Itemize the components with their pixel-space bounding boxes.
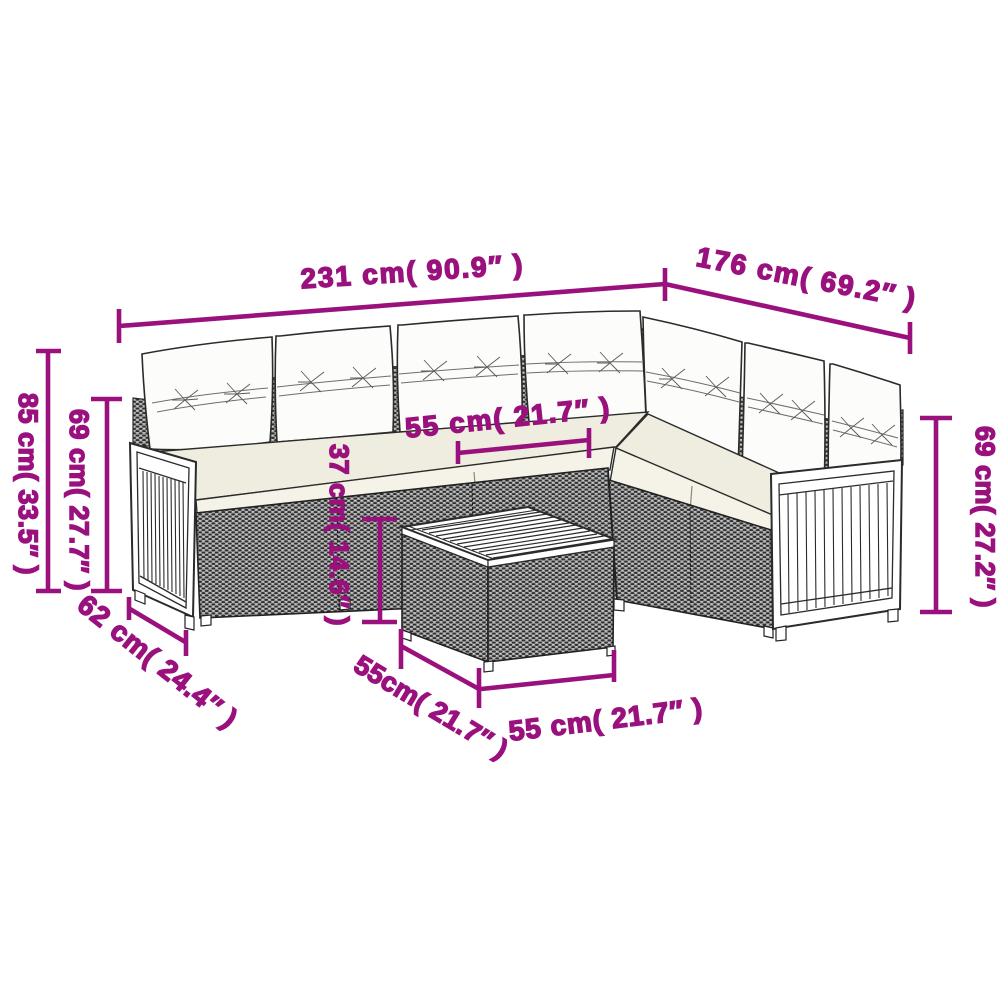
svg-text:69 cm( 27.7″ ): 69 cm( 27.7″ ) xyxy=(64,409,94,591)
svg-text:37 cm( 14.6″ ): 37 cm( 14.6″ ) xyxy=(324,444,354,626)
svg-text:69 cm( 27.2″ ): 69 cm( 27.2″ ) xyxy=(970,426,1000,608)
svg-text:85 cm( 33.5″ ): 85 cm( 33.5″ ) xyxy=(13,393,43,575)
